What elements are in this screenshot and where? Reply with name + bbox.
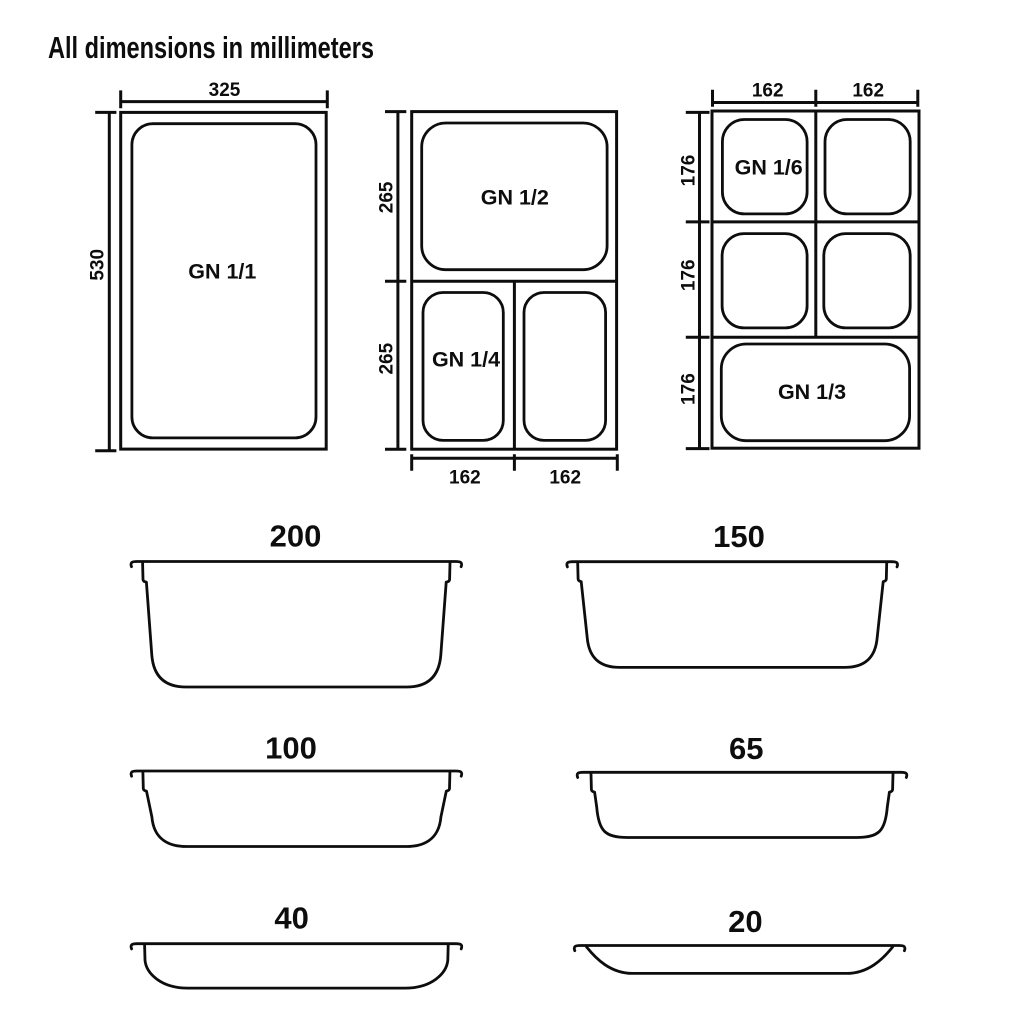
- svg-text:GN 1/2: GN 1/2: [481, 186, 549, 210]
- svg-text:40: 40: [274, 901, 308, 936]
- svg-text:162: 162: [549, 467, 581, 488]
- svg-text:GN 1/3: GN 1/3: [778, 380, 846, 404]
- svg-text:GN 1/4: GN 1/4: [432, 347, 500, 371]
- svg-text:200: 200: [270, 519, 322, 554]
- svg-text:176: 176: [679, 155, 700, 187]
- svg-text:150: 150: [713, 519, 765, 554]
- svg-text:176: 176: [679, 373, 700, 405]
- svg-text:265: 265: [376, 181, 397, 213]
- svg-text:530: 530: [87, 249, 108, 281]
- svg-text:100: 100: [265, 731, 317, 766]
- svg-text:162: 162: [752, 80, 784, 101]
- svg-text:GN 1/6: GN 1/6: [735, 155, 803, 179]
- svg-text:GN 1/1: GN 1/1: [188, 259, 256, 283]
- svg-text:265: 265: [376, 342, 397, 374]
- svg-text:20: 20: [728, 904, 762, 939]
- svg-text:All dimensions in millimeters: All dimensions in millimeters: [48, 31, 374, 65]
- svg-text:162: 162: [449, 467, 481, 488]
- svg-text:162: 162: [852, 80, 884, 101]
- svg-text:65: 65: [729, 731, 763, 766]
- svg-text:176: 176: [679, 259, 700, 291]
- svg-text:325: 325: [209, 80, 241, 101]
